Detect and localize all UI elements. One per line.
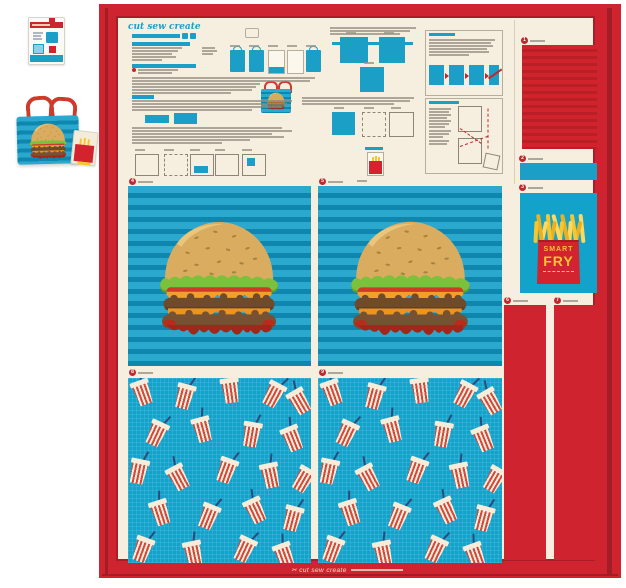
cup-motif [147,497,175,527]
cup-motif [318,534,346,563]
cup-motif [164,461,194,493]
text-line [429,140,449,142]
brand-logo: cut sew create [128,22,201,32]
cup-motif [318,378,346,408]
fry-pouch [70,130,98,166]
fry-strand [533,221,538,243]
text-line [202,50,217,52]
package-text-line [33,38,42,40]
cup-motif [171,381,198,411]
cup-motif [371,539,397,563]
diagram-caption [384,32,394,34]
cup-motif [212,455,240,486]
fry-box-rim [537,240,580,242]
burger-print-piece-right [318,186,502,366]
cup-motif [332,417,362,449]
fry-pouch-word [77,161,90,165]
piece-number: 2 [519,155,526,162]
piece-label-5: 5 [319,178,343,185]
diagram-inset [194,166,208,173]
piece-number: 5 [319,178,326,185]
piece-label-7: 7 [554,297,578,304]
footer-brand-text: ✂ cut sew create [99,566,595,574]
sewing-step-diagram [379,37,405,63]
text-line [132,80,310,82]
text-line [132,59,162,61]
diagram-caption [190,149,200,151]
package-text-line [33,32,43,34]
text-line [302,100,410,102]
text-line [132,86,256,88]
bag-step-diagram [287,50,304,74]
text-line [132,56,176,58]
corner-square-diagram [483,153,501,171]
diagram-caption [364,62,374,64]
fry-pouch-illustration [367,152,384,176]
cup-motif [337,497,365,527]
diagram-inset [247,158,255,166]
cup-motif [420,534,450,563]
fry-box-dashed-line [543,271,573,272]
cup-motif [218,378,242,404]
text-line [302,103,394,105]
red-striped-fabric-piece [522,45,597,149]
piece-label-2: 2 [519,155,543,162]
bag-step-diagram [249,50,264,72]
cup-motif [408,378,432,404]
text-line [132,142,222,144]
fry-box-word-bottom: FRY [537,254,580,268]
diagram-caption [268,45,278,47]
text-line [132,109,252,111]
thumbnail-packaged-panel[interactable] [28,17,65,65]
text-line [429,136,443,138]
piece-number: 6 [504,297,511,304]
bag-step-diagram [230,50,245,72]
step-square [429,65,444,85]
sewing-step-diagram [360,67,384,92]
text-line [429,45,493,47]
text-line [429,126,445,128]
cutting-diagram [135,154,159,176]
text-line [132,92,231,94]
package-mini-bag-outline [33,44,44,54]
diagram-caption [135,149,145,151]
cup-motif [380,415,407,445]
burger-art [144,206,294,345]
piece-label-9: 9 [319,369,343,376]
cup-motif [431,495,461,527]
thumbnail-finished-tote[interactable] [14,94,98,170]
cup-motif [430,421,455,449]
cup-motif [361,381,388,411]
diagram-caption [287,45,297,47]
text-line [132,77,315,79]
package-mini-frybox-art [49,46,56,53]
cup-motif [384,501,413,532]
text-line [429,111,449,113]
cup-motif [448,461,474,490]
text-line [429,117,447,119]
cup-motif [271,540,299,563]
text-line [429,130,451,132]
text-line [330,27,416,29]
section-divider [514,20,515,184]
project-icon [182,33,188,39]
footer-brand-logo: ✂ cut sew create [291,567,347,574]
cup-motif [128,457,151,486]
section-header-bar [132,64,196,68]
text-line [132,103,287,105]
section-header-bar [132,95,154,99]
piece-label-4: 4 [129,178,153,185]
panel-main-image[interactable]: cut sew create [99,4,621,578]
fold-diagram-dashed [362,112,386,137]
step-square [469,65,484,85]
text-line [132,106,282,108]
bag-step-diagram [306,50,321,72]
piece-label-8: 8 [129,369,153,376]
finished-tote-illustration [259,80,293,124]
cutting-diagram [190,154,214,176]
diagram-caption [391,107,401,109]
cup-motif [189,415,216,445]
cup-motif [142,417,172,449]
diagram-caption [230,45,240,47]
text-line [202,53,213,55]
section-header-bar [429,33,455,36]
text-line [429,123,449,125]
text-line [132,50,178,52]
cutting-diagram [242,154,266,176]
handle-strip-piece-left [504,305,546,560]
handle-strip-piece-right [554,305,596,560]
cup-motif [194,501,223,532]
soda-cup-print-piece-right [318,378,502,563]
piece-label-1: 1 [521,37,545,44]
project-icon [190,33,196,39]
footer-extra-text-line [351,569,403,571]
cup-motif [278,423,307,454]
cup-motif [288,463,311,495]
text-line [429,108,451,110]
text-line [429,51,489,53]
cup-motif [257,461,283,490]
cup-motif [475,386,502,418]
stitch-line [488,109,489,149]
soda-cup-print-piece-left [128,378,311,563]
diagram-caption [364,107,374,109]
piece-number: 8 [129,369,136,376]
frame-stripe-right [607,8,612,574]
fry-pouch-box [74,144,95,163]
diagram-caption [334,107,344,109]
cup-motif [239,421,264,449]
piece-label-3: 3 [519,184,543,191]
cup-motif [241,495,271,527]
package-mini-bag-art [46,32,58,43]
burger-illustration [335,206,486,345]
text-line [132,130,292,132]
text-line [132,133,272,135]
teal-fabric-strip [520,163,597,180]
sewing-step-diagram [332,112,355,135]
step-arrow-icon [465,73,469,79]
text-line [132,127,282,129]
piece-number: 1 [521,37,528,44]
cup-motif [450,378,480,410]
corner-tag [245,28,259,38]
text-line [132,53,172,55]
frame-stripe-left [105,8,108,574]
burger-print-piece-left [128,186,311,366]
diagram-caption [164,149,174,151]
section-header-bar [132,34,180,38]
text-line [132,47,182,49]
package-bottom-band [30,55,63,62]
text-line [429,120,451,122]
fold-diagram [389,112,414,137]
text-line [132,89,252,91]
sewing-step-diagram [340,37,368,63]
package-header-text-line [32,24,50,26]
piece-number: 7 [554,297,561,304]
diagram-strap-piece [145,115,169,123]
bag-step-diagram [268,50,285,74]
text-line [132,83,260,85]
text-line [429,54,469,56]
text-line [302,97,414,99]
cup-motif [279,503,306,533]
cup-motif [181,539,207,563]
section-header-bar [365,147,383,150]
cup-motif [462,540,490,563]
text-line [429,114,451,116]
frame-stripe-bottom [102,574,618,576]
text-line [429,39,495,41]
cup-motif [403,455,431,486]
diagram-caption [215,149,225,151]
text-line [429,48,487,50]
cup-motif [354,461,384,493]
smart-fry-print-piece: SMART FRY [520,193,597,293]
product-image-page: cut sew create [0,0,626,588]
piece-label-6: 6 [504,297,528,304]
diagram-caption [357,180,367,182]
diagram-pocket-piece [174,113,197,124]
burger-art [335,206,486,345]
text-line [429,143,447,145]
text-line [132,100,292,102]
section-header-bar [429,101,459,104]
cup-motif [230,534,260,563]
step-square [449,65,464,85]
cup-motif [470,503,497,533]
text-line [132,139,250,141]
cup-motif [128,534,156,563]
piece-number: 4 [129,178,136,185]
cup-motif [479,463,502,495]
text-line [138,72,172,74]
piece-number: 9 [319,369,326,376]
cup-motif [318,457,341,486]
step-arrow-icon [445,73,449,79]
text-line [429,42,491,44]
text-line [330,30,410,32]
text-line [429,133,449,135]
step-square-cut [489,65,499,85]
text-line [138,69,178,71]
burger-art [21,119,74,161]
diagram-caption [249,45,259,47]
cup-motif [128,378,156,408]
diagram-caption [306,45,316,47]
text-line [132,136,284,138]
cutting-diagram [215,154,239,176]
diagram-caption [242,149,252,151]
text-line [202,47,215,49]
piece-number: 3 [519,184,526,191]
step-arrow-icon [485,73,489,79]
diagram-caption [346,32,356,34]
cutting-diagram-dashed [164,154,188,176]
fry-pouch-box [369,161,382,174]
cup-motif [284,386,311,418]
cup-motif [469,423,498,454]
burger-illustration [144,206,294,345]
package-text-line [33,35,41,37]
fry-box-art: SMART FRY [537,240,580,284]
burger-illustration [21,119,74,161]
section-header-bar [132,42,190,46]
note-bullet-icon [132,68,136,72]
panel-interior: cut sew create [116,16,595,561]
